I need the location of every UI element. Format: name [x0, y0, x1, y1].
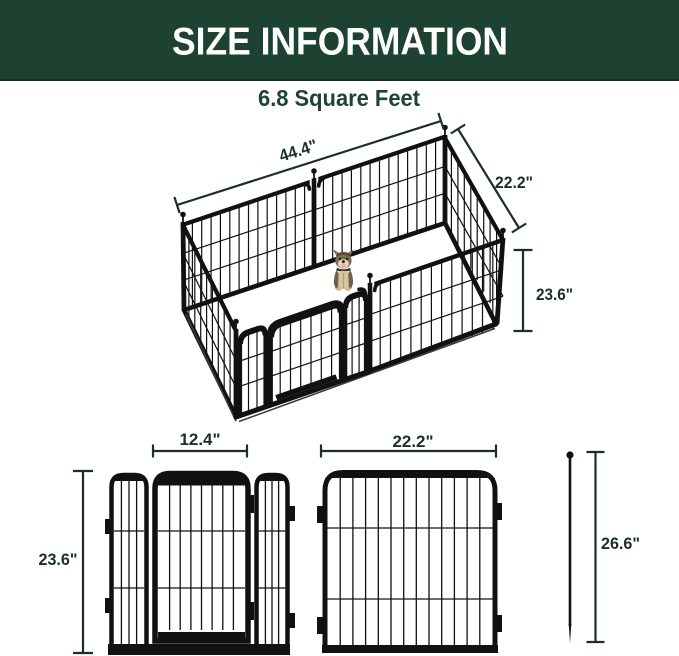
- svg-text:6.8 Square Feet: 6.8 Square Feet: [258, 85, 420, 111]
- svg-text:23.6": 23.6": [536, 285, 573, 304]
- svg-text:23.6": 23.6": [39, 550, 78, 569]
- svg-text:26.6": 26.6": [601, 534, 640, 553]
- svg-text:SIZE INFORMATION: SIZE INFORMATION: [172, 21, 508, 64]
- svg-text:12.4": 12.4": [180, 430, 221, 449]
- svg-text:22.2": 22.2": [495, 173, 533, 192]
- svg-text:22.2": 22.2": [393, 432, 434, 451]
